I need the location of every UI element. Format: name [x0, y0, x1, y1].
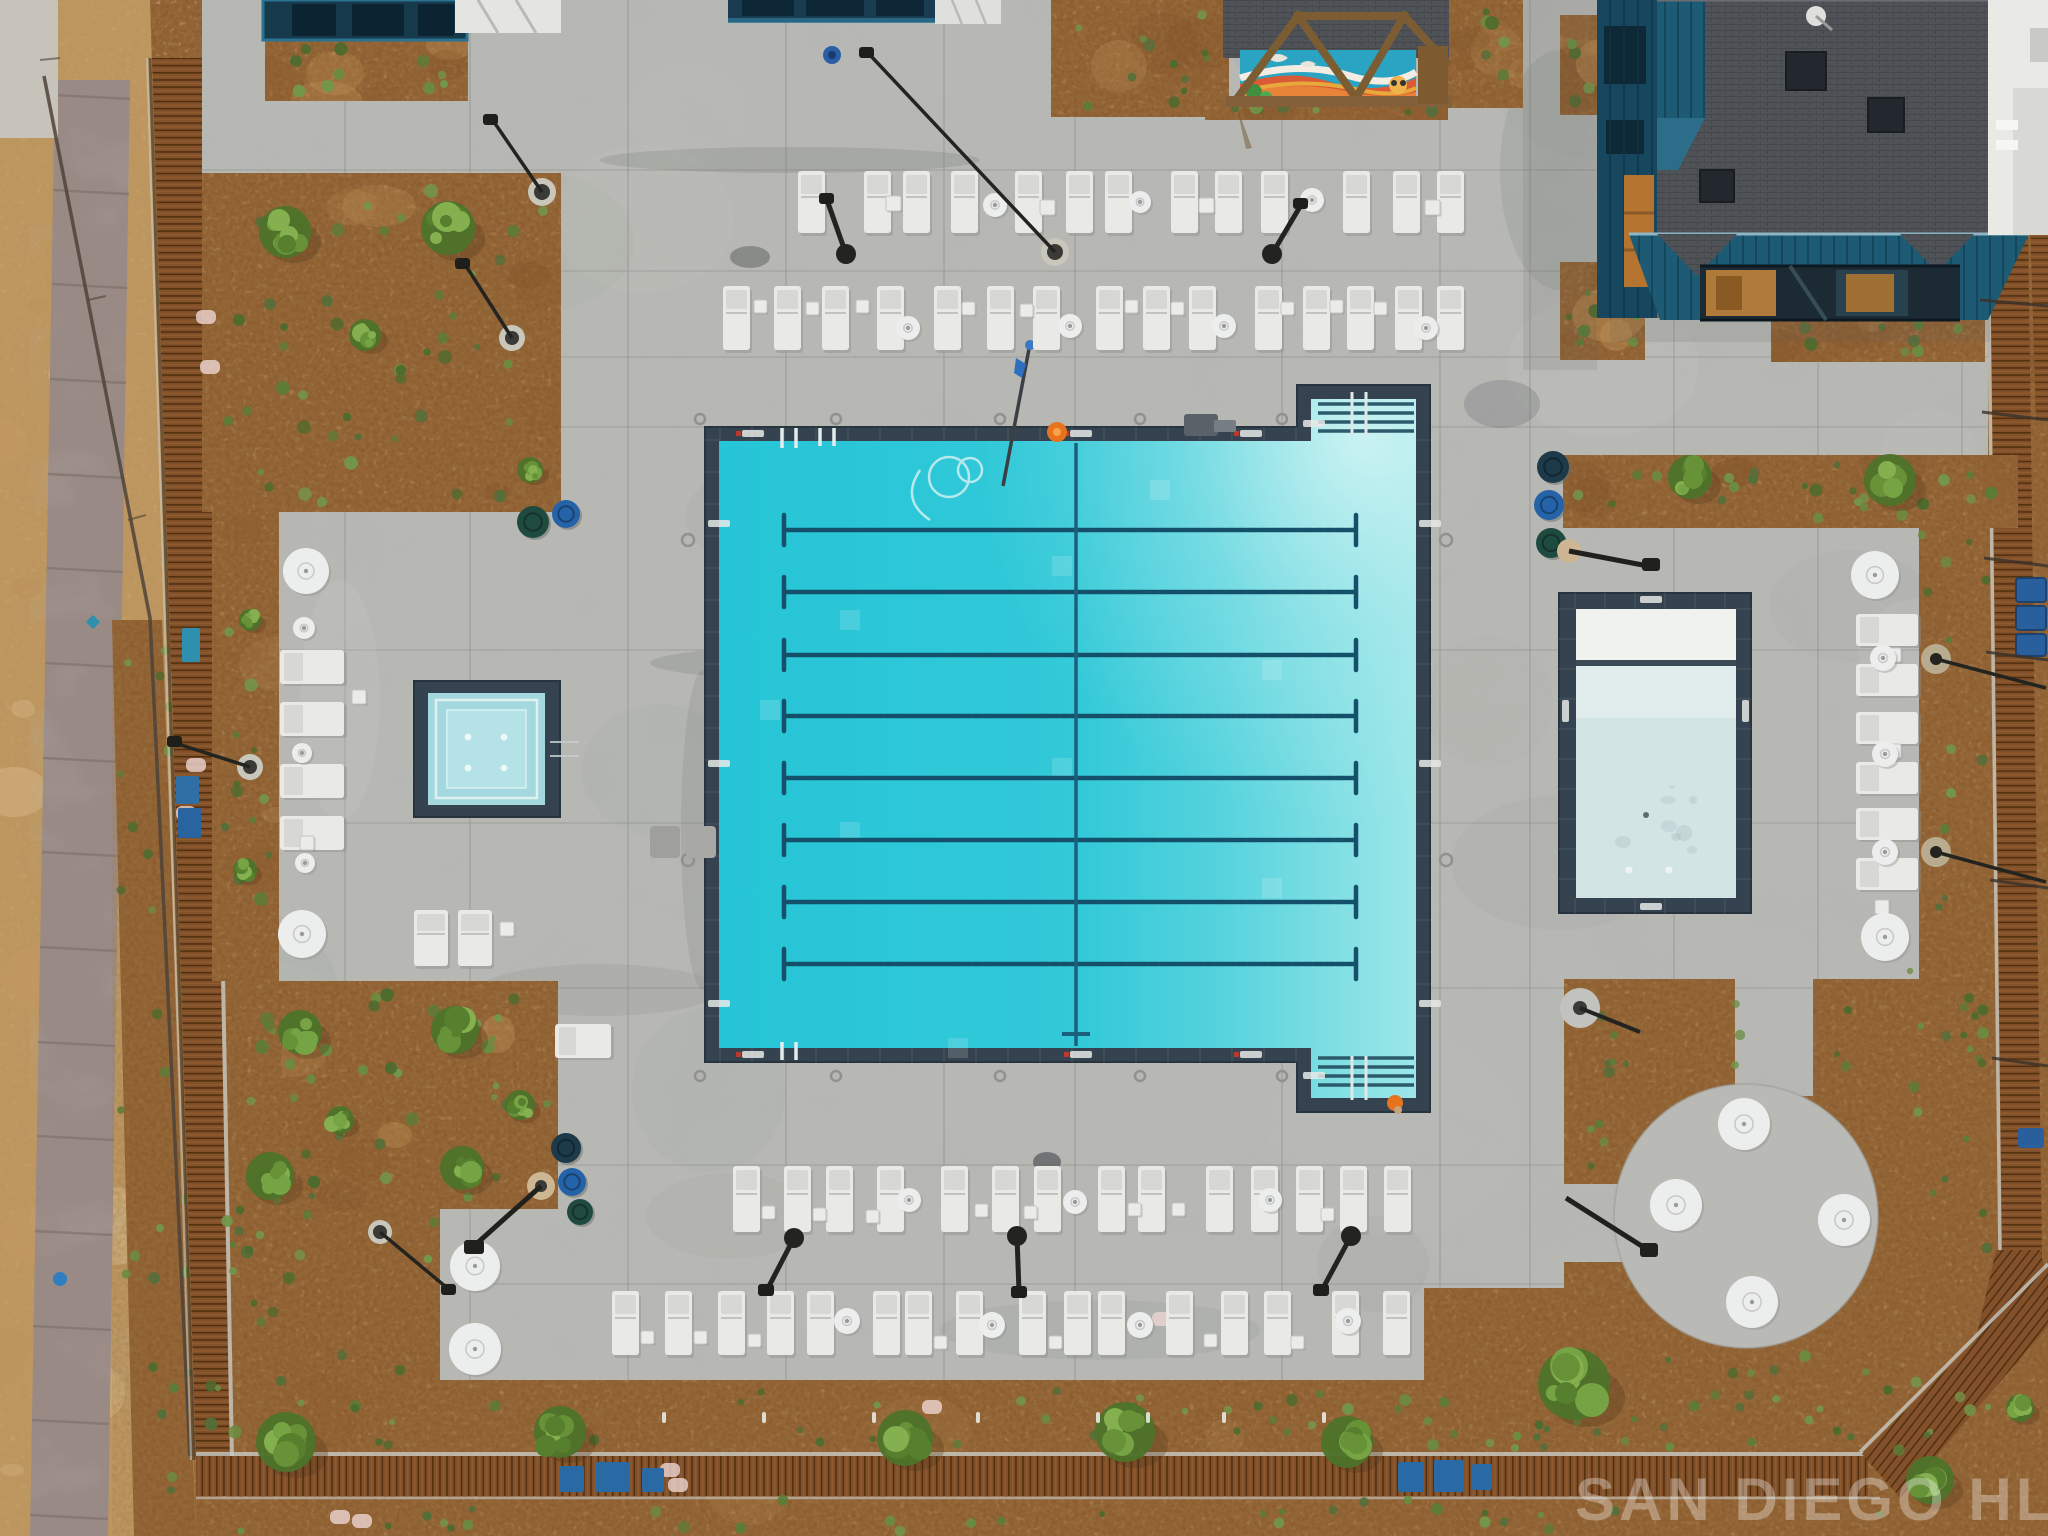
svg-text:SAN DIEGO HLS: SAN DIEGO HLS: [1575, 1466, 2048, 1533]
